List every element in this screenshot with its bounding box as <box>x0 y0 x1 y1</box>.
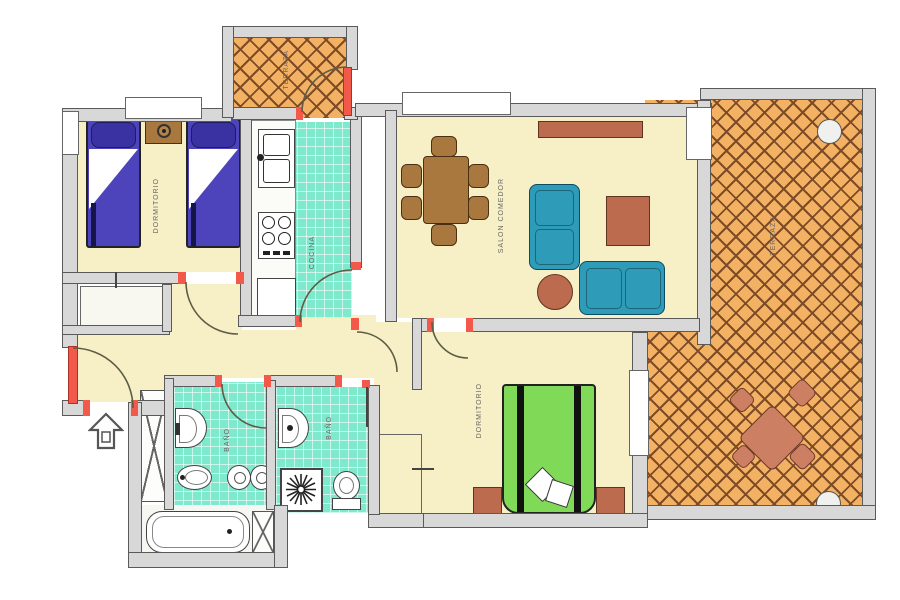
wall <box>466 318 700 332</box>
faucet <box>287 425 293 431</box>
pillow <box>191 122 236 148</box>
lamp-dot <box>162 129 166 133</box>
wall <box>418 513 648 528</box>
door-jamb <box>351 318 359 330</box>
wall <box>346 26 358 70</box>
faucet <box>175 423 180 435</box>
bed-stripe <box>574 386 581 512</box>
blanket-stripe <box>91 203 96 246</box>
sheet-fold <box>189 149 238 209</box>
hall-floor <box>168 284 242 332</box>
toilet-inner <box>339 477 354 494</box>
wall <box>412 318 422 390</box>
stove-knob <box>263 251 270 255</box>
wall <box>350 108 362 268</box>
window <box>686 107 712 160</box>
window <box>402 92 511 115</box>
closet-door-mark <box>412 468 434 470</box>
wall <box>232 107 302 120</box>
twin-bed <box>186 117 241 248</box>
faucet <box>257 154 264 161</box>
room-label-bedroom1: DORMITORIO <box>153 178 160 233</box>
wall <box>238 315 302 327</box>
sink-bowl <box>263 159 290 183</box>
sofa-two-seat <box>579 261 665 315</box>
door-jamb <box>466 318 473 332</box>
wall <box>164 378 174 510</box>
nightstand <box>473 487 502 514</box>
room-label-living: SALON COMEDOR <box>498 178 505 253</box>
room-label-balcony: TERRAZA <box>283 50 290 90</box>
wall <box>632 505 876 520</box>
wardrobe <box>80 286 164 328</box>
side-table-round <box>537 274 573 310</box>
dining-chair <box>468 196 489 220</box>
toilet <box>333 471 360 500</box>
door-jamb <box>295 315 302 327</box>
shower-burst-icon <box>282 470 320 509</box>
room-label-bath2: BAÑO <box>326 416 333 440</box>
bidet <box>227 465 251 490</box>
wall <box>862 88 876 520</box>
burner <box>278 216 291 229</box>
room-label-kitchen: COCINA <box>309 236 316 269</box>
wall <box>128 402 142 568</box>
floor-plan: DORMITORIO COCINA SALON COMEDOR DORMITOR… <box>0 0 900 600</box>
nightstand <box>145 119 182 144</box>
door-jamb <box>131 400 138 416</box>
door-jamb <box>351 262 361 270</box>
drain <box>227 529 232 534</box>
dining-chair <box>401 196 422 220</box>
door-jamb <box>215 375 222 387</box>
shaft <box>252 511 274 553</box>
twin-bed <box>86 117 141 248</box>
dining-chair <box>468 164 489 188</box>
window <box>62 111 79 155</box>
double-bed <box>502 384 596 514</box>
door-jamb <box>296 107 303 120</box>
burner <box>262 232 275 245</box>
sofa-cushion <box>535 229 574 265</box>
wall <box>222 26 358 38</box>
wardrobe <box>374 434 422 514</box>
room-label-bedroom2: DORMITORIO <box>476 383 483 438</box>
window <box>125 97 202 119</box>
sideboard <box>538 121 643 138</box>
dining-chair <box>431 224 457 246</box>
dining-chair <box>431 136 457 157</box>
kitchen-counter-unit <box>257 278 296 316</box>
wall <box>266 380 276 510</box>
toilet-tank <box>332 498 361 510</box>
sofa-cushion <box>535 190 574 226</box>
door-leaf-line <box>366 387 368 427</box>
sofa-cushion <box>625 268 661 309</box>
door-jamb <box>264 375 271 387</box>
bidet-inner <box>234 472 246 484</box>
basin-inner <box>179 415 197 443</box>
wall <box>240 108 252 327</box>
wall <box>274 505 288 568</box>
pillow <box>91 122 136 148</box>
blanket-stripe <box>191 203 196 246</box>
wall <box>62 272 186 284</box>
side-table-square <box>606 196 650 246</box>
flush-dot <box>180 475 185 480</box>
bathtub <box>146 511 250 553</box>
door-leaf <box>68 346 78 404</box>
balcony-floor <box>234 38 346 118</box>
sofa-two-seat <box>529 184 580 270</box>
door-jamb <box>178 272 186 284</box>
stove <box>258 212 295 259</box>
dining-chair <box>401 164 422 188</box>
wall <box>700 88 876 100</box>
burner <box>278 232 291 245</box>
sheet-fold <box>89 149 138 209</box>
dining-table <box>423 156 469 224</box>
room-label-terrace: TERRAZA <box>770 216 777 256</box>
door-jamb <box>236 272 244 284</box>
stove-knob <box>273 251 280 255</box>
toilet <box>177 465 212 490</box>
door-leaf <box>343 67 352 116</box>
wall <box>128 552 286 568</box>
entrance-arrow-icon <box>88 412 124 452</box>
burner <box>262 216 275 229</box>
wall <box>162 284 172 332</box>
door-jamb <box>427 318 434 332</box>
toilet-inner <box>185 470 208 485</box>
wall <box>368 385 380 515</box>
nightstand <box>596 487 625 514</box>
kitchen-sink <box>258 129 295 188</box>
wall <box>62 325 170 335</box>
wall <box>368 513 424 528</box>
closet-door-mark <box>115 272 117 288</box>
room-label-bath1: BAÑO <box>224 428 231 452</box>
terrace-light <box>817 119 842 144</box>
sink-bowl <box>263 134 290 156</box>
sofa-cushion <box>586 268 622 309</box>
bed-stripe <box>517 386 524 512</box>
wall <box>385 110 397 322</box>
stove-knob <box>283 251 290 255</box>
wall <box>222 26 234 118</box>
door-jamb <box>335 375 342 387</box>
window <box>629 370 649 456</box>
